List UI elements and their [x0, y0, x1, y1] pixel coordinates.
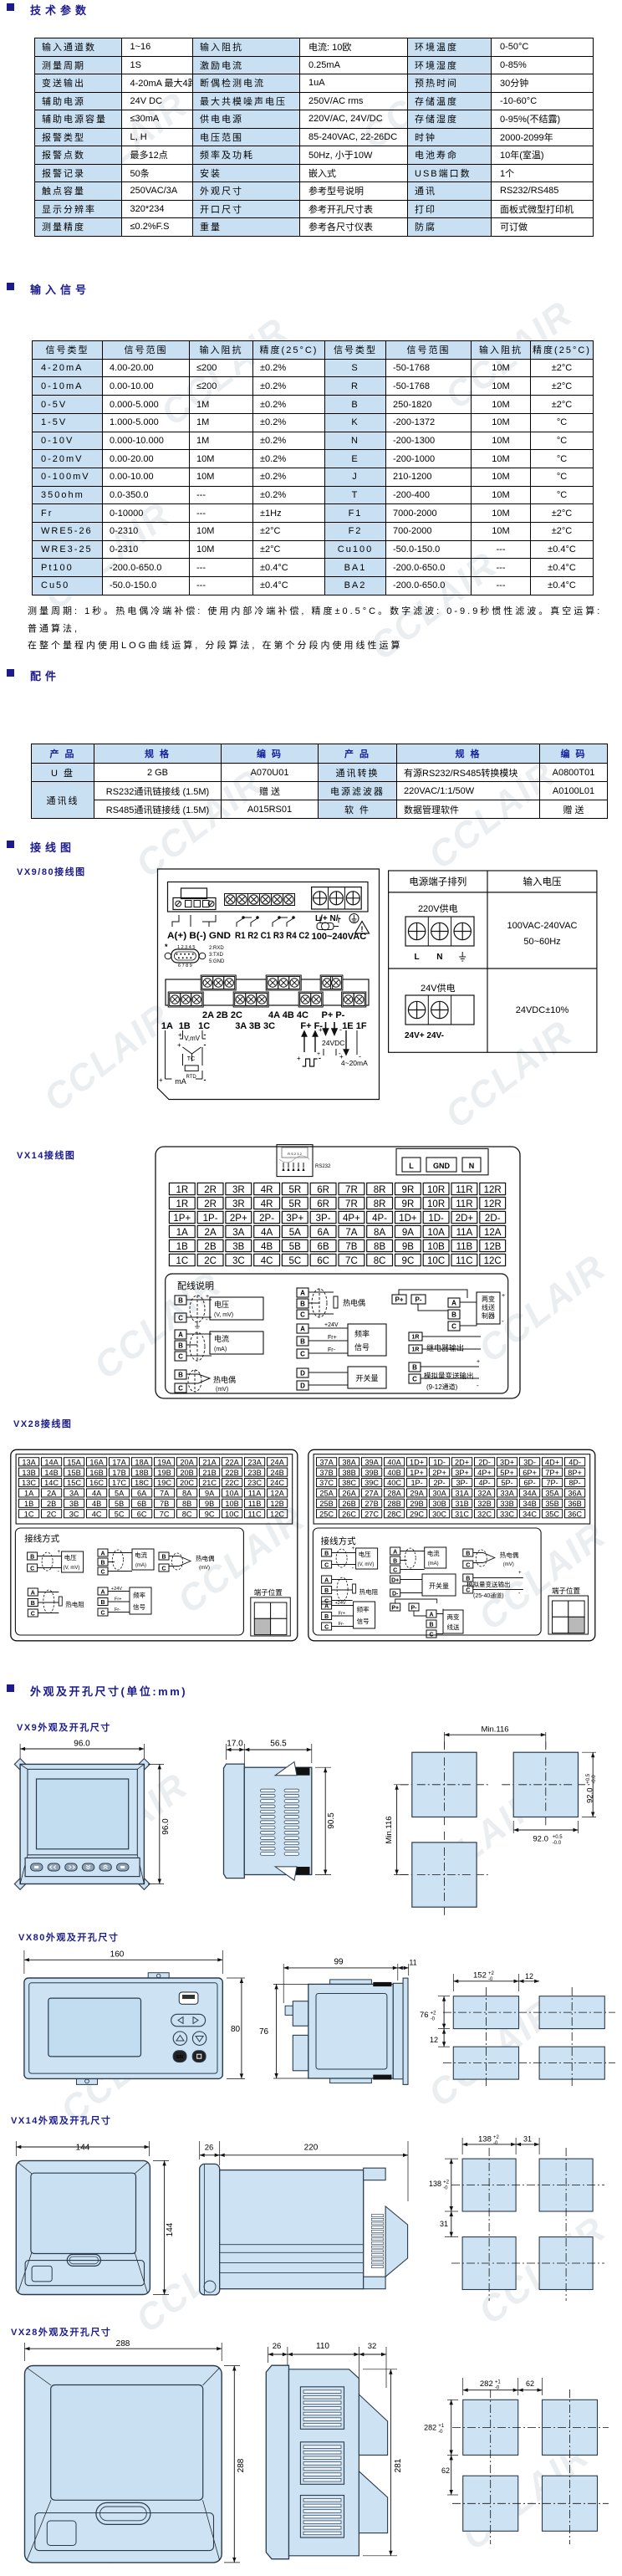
svg-text:+2: +2 — [488, 1971, 495, 1976]
svg-text:281: 281 — [394, 2458, 403, 2472]
svg-text:37C: 37C — [319, 1479, 334, 1487]
svg-text:+: + — [339, 1053, 344, 1061]
svg-text:RS232: RS232 — [315, 1164, 331, 1169]
svg-text:5A: 5A — [289, 1228, 301, 1238]
svg-text:282: 282 — [424, 2424, 436, 2432]
svg-text:23B: 23B — [247, 1469, 261, 1477]
svg-text:P-: P- — [416, 1296, 422, 1304]
svg-text:+2: +2 — [431, 2011, 437, 2016]
svg-text:1B: 1B — [179, 1021, 191, 1031]
svg-text:1D-: 1D- — [428, 1214, 444, 1224]
svg-text:C: C — [100, 1611, 105, 1617]
svg-text:4D-: 4D- — [568, 1458, 581, 1466]
svg-text:1B: 1B — [176, 1242, 188, 1252]
svg-text:-0: -0 — [431, 2017, 436, 2022]
svg-text:32: 32 — [368, 2342, 377, 2351]
svg-text:19B: 19B — [157, 1469, 171, 1477]
svg-text:36C: 36C — [568, 1510, 582, 1518]
svg-text:+1: +1 — [495, 2379, 502, 2384]
svg-text:A(+) B(-) GND: A(+) B(-) GND — [167, 931, 231, 941]
svg-text:5B: 5B — [289, 1242, 301, 1252]
svg-text:+24V: +24V — [335, 1601, 346, 1606]
svg-text:电流: 电流 — [214, 1334, 229, 1343]
svg-text:4~20mA: 4~20mA — [341, 1059, 368, 1067]
svg-text:15B: 15B — [67, 1469, 80, 1477]
svg-text:Min.116: Min.116 — [481, 1725, 508, 1735]
svg-text:9R: 9R — [402, 1199, 415, 1209]
svg-text:P+ P-: P+ P- — [322, 1010, 345, 1020]
svg-text:-0: -0 — [443, 2186, 448, 2191]
svg-text:32A: 32A — [477, 1490, 492, 1498]
svg-text:8R: 8R — [374, 1199, 386, 1209]
svg-text:11B: 11B — [456, 1242, 473, 1252]
svg-text:C: C — [30, 1567, 34, 1572]
svg-text:A: A — [300, 1290, 305, 1297]
svg-text:35A: 35A — [545, 1490, 559, 1498]
svg-text:+: + — [518, 1571, 522, 1576]
svg-text:2A 2B 2C: 2A 2B 2C — [202, 1010, 242, 1020]
svg-text:17.0: 17.0 — [227, 1740, 243, 1749]
svg-text:36B: 36B — [568, 1500, 581, 1508]
svg-text:两变: 两变 — [447, 1613, 460, 1621]
svg-text:22A: 22A — [225, 1458, 239, 1466]
svg-text:37B: 37B — [319, 1469, 333, 1477]
svg-text:9B: 9B — [402, 1242, 414, 1252]
svg-text:开关量: 开关量 — [429, 1582, 449, 1590]
svg-text:V,mV: V,mV — [184, 1035, 200, 1042]
svg-text:6A: 6A — [137, 1490, 147, 1498]
svg-text:B: B — [300, 1301, 305, 1308]
svg-text:3R: 3R — [232, 1199, 245, 1209]
svg-text:A: A — [100, 1590, 105, 1596]
svg-text:(9-12通道): (9-12通道) — [426, 1383, 458, 1391]
svg-text:Fr+: Fr+ — [115, 1597, 121, 1602]
svg-text:13A: 13A — [22, 1458, 36, 1466]
svg-text:D: D — [300, 1383, 305, 1390]
svg-text:*: * — [165, 943, 168, 951]
svg-text:4P+: 4P+ — [343, 1214, 360, 1224]
svg-text:152: 152 — [473, 1971, 487, 1981]
svg-text:C: C — [324, 1625, 329, 1631]
svg-text:92.0: 92.0 — [586, 1788, 595, 1804]
svg-text:+: + — [502, 1293, 505, 1299]
svg-text:1C: 1C — [176, 1256, 188, 1266]
svg-text:6 7 8 9: 6 7 8 9 — [178, 963, 192, 969]
svg-text:R S 2 3 2: R S 2 3 2 — [288, 1152, 302, 1156]
svg-text:1P+: 1P+ — [410, 1469, 424, 1477]
svg-text:26C: 26C — [342, 1510, 356, 1518]
svg-text:12C: 12C — [270, 1510, 284, 1518]
svg-text:频率: 频率 — [133, 1591, 145, 1599]
svg-text:输入电压: 输入电压 — [523, 876, 562, 887]
svg-text:3P-: 3P- — [316, 1214, 331, 1224]
svg-text:电流: 电流 — [427, 1549, 440, 1557]
svg-text:288: 288 — [116, 2339, 130, 2349]
svg-text:11R: 11R — [456, 1185, 472, 1195]
svg-text:92.0: 92.0 — [533, 1835, 548, 1844]
svg-text:Fr-: Fr- — [339, 1622, 344, 1627]
svg-text:100~240VAC: 100~240VAC — [312, 932, 367, 942]
svg-text:B: B — [178, 1372, 183, 1379]
svg-text:18B: 18B — [135, 1469, 148, 1477]
svg-text:3P-: 3P- — [456, 1479, 467, 1487]
svg-text:(V, mV): (V, mV) — [358, 1562, 375, 1567]
svg-text:A: A — [429, 1613, 433, 1618]
svg-text:2A: 2A — [47, 1490, 57, 1498]
svg-text:3:TXD: 3:TXD — [209, 953, 224, 958]
svg-text:L: L — [409, 1162, 414, 1170]
svg-text:+2: +2 — [443, 2180, 450, 2185]
svg-text:4B: 4B — [92, 1500, 101, 1508]
svg-text:7A: 7A — [160, 1490, 170, 1498]
svg-text:11C: 11C — [456, 1256, 472, 1266]
svg-text:26: 26 — [273, 2342, 282, 2351]
svg-text:B: B — [31, 1601, 35, 1607]
svg-text:信号: 信号 — [357, 1617, 370, 1625]
svg-text:2D-: 2D- — [485, 1214, 501, 1224]
svg-text:+0.5: +0.5 — [553, 1835, 563, 1840]
svg-text:6B: 6B — [318, 1242, 329, 1252]
svg-text:3C: 3C — [232, 1256, 245, 1266]
svg-text:3B: 3B — [69, 1500, 79, 1508]
svg-text:9A: 9A — [205, 1490, 215, 1498]
svg-text:10A: 10A — [427, 1228, 445, 1238]
svg-text:L/+ N/-: L/+ N/- — [315, 914, 341, 923]
svg-text:-: - — [204, 1030, 206, 1039]
svg-text:20A: 20A — [180, 1458, 194, 1466]
svg-text:A: A — [31, 1591, 35, 1597]
svg-text:11A: 11A — [456, 1228, 473, 1238]
svg-text:线送: 线送 — [447, 1623, 460, 1631]
svg-text:36A: 36A — [568, 1490, 582, 1498]
svg-text:B: B — [100, 1561, 105, 1567]
svg-text:1P-: 1P- — [203, 1214, 218, 1224]
svg-text:22B: 22B — [225, 1469, 238, 1477]
svg-text:24B: 24B — [270, 1469, 283, 1477]
svg-text:10A: 10A — [225, 1490, 239, 1498]
svg-text:-0: -0 — [493, 2141, 498, 2146]
svg-text:4R: 4R — [261, 1199, 273, 1209]
svg-text:+: + — [177, 1041, 181, 1049]
svg-text:模拟量变送输出: 模拟量变送输出 — [424, 1372, 474, 1380]
svg-text:4A: 4A — [92, 1490, 102, 1498]
svg-text:1D+: 1D+ — [410, 1458, 424, 1466]
svg-text:(V, mV): (V, mV) — [214, 1312, 233, 1318]
svg-text:+: + — [58, 1550, 61, 1555]
svg-text:5P+: 5P+ — [500, 1469, 514, 1477]
svg-text:3A 3B 3C: 3A 3B 3C — [235, 1021, 275, 1031]
svg-text:C: C — [466, 1563, 470, 1569]
svg-text:B: B — [324, 1551, 329, 1557]
svg-text:A: A — [324, 1604, 329, 1610]
svg-text:4A 4B 4C: 4A 4B 4C — [268, 1010, 308, 1020]
svg-text:26A: 26A — [342, 1490, 356, 1498]
svg-text:电压: 电压 — [64, 1553, 77, 1561]
svg-text:-0: -0 — [438, 2430, 443, 2435]
svg-text:(25-40通道): (25-40通道) — [473, 1592, 504, 1599]
svg-text:2B: 2B — [205, 1242, 217, 1252]
svg-text:27B: 27B — [365, 1500, 378, 1508]
svg-text:2C: 2C — [47, 1510, 57, 1518]
svg-text:5C: 5C — [288, 1256, 301, 1266]
svg-text:2P-: 2P- — [259, 1214, 274, 1224]
svg-text:17C: 17C — [112, 1479, 126, 1487]
svg-text:16B: 16B — [89, 1469, 103, 1477]
svg-text:32B: 32B — [477, 1500, 491, 1508]
svg-text:25A: 25A — [319, 1490, 334, 1498]
svg-text:2D+: 2D+ — [456, 1214, 474, 1224]
svg-text:17B: 17B — [112, 1469, 125, 1477]
svg-text:17A: 17A — [112, 1458, 126, 1466]
svg-text:12: 12 — [525, 1972, 533, 1981]
svg-text:3B: 3B — [232, 1242, 244, 1252]
svg-text:-: - — [206, 1316, 208, 1323]
svg-text:220V供电: 220V供电 — [418, 902, 458, 914]
svg-text:接线方式: 接线方式 — [24, 1533, 59, 1544]
svg-text:热电偶: 热电偶 — [213, 1375, 236, 1384]
svg-text:mA: mA — [175, 1077, 186, 1086]
svg-text:-: - — [339, 1025, 342, 1034]
svg-text:33C: 33C — [500, 1510, 514, 1518]
svg-text:35B: 35B — [545, 1500, 558, 1508]
svg-text:P-: P- — [411, 1606, 418, 1612]
svg-text:电压: 电压 — [214, 1300, 229, 1309]
svg-text:+: + — [206, 1294, 209, 1300]
svg-text:19C: 19C — [157, 1479, 171, 1487]
svg-text:+: + — [159, 1076, 163, 1084]
svg-text:1P+: 1P+ — [173, 1214, 191, 1224]
svg-text:16C: 16C — [89, 1479, 104, 1487]
svg-text:-: - — [204, 1076, 206, 1084]
svg-text:24VDC: 24VDC — [322, 1039, 344, 1047]
svg-text:-0: -0 — [495, 2385, 500, 2390]
svg-text:热电阻: 热电阻 — [359, 1587, 379, 1596]
svg-text:9A: 9A — [402, 1228, 414, 1238]
svg-text:26B: 26B — [342, 1500, 355, 1508]
svg-text:B: B — [30, 1555, 34, 1561]
svg-text:62: 62 — [441, 2466, 450, 2475]
svg-text:-: - — [477, 1382, 479, 1389]
svg-text:信号: 信号 — [133, 1602, 145, 1611]
svg-text:GND: GND — [433, 1162, 451, 1170]
svg-text:6P+: 6P+ — [523, 1469, 537, 1477]
svg-text:28A: 28A — [387, 1490, 401, 1498]
svg-text:99: 99 — [334, 1958, 344, 1967]
svg-text:D: D — [300, 1370, 305, 1377]
svg-text:3R: 3R — [232, 1185, 245, 1195]
svg-text:27C: 27C — [365, 1510, 379, 1518]
svg-text:24V+ 24V-: 24V+ 24V- — [405, 1031, 444, 1040]
svg-text:两变: 两变 — [482, 1295, 495, 1303]
svg-text:24V供电: 24V供电 — [421, 982, 456, 994]
svg-text:+: + — [477, 1359, 480, 1365]
svg-text:B: B — [412, 1364, 417, 1372]
svg-text:EN: EN — [176, 2055, 183, 2060]
svg-text:24A: 24A — [270, 1458, 284, 1466]
svg-text:8B: 8B — [182, 1500, 191, 1508]
svg-text:282: 282 — [480, 2379, 493, 2389]
svg-text:5:GND: 5:GND — [209, 959, 225, 964]
svg-text:40C: 40C — [387, 1479, 401, 1487]
svg-text:(V, mV): (V, mV) — [64, 1566, 80, 1571]
svg-text:7C: 7C — [160, 1510, 170, 1518]
svg-text:14B: 14B — [44, 1469, 58, 1477]
svg-text:56.5: 56.5 — [270, 1740, 287, 1749]
svg-text:2D-: 2D- — [478, 1458, 491, 1466]
svg-text:B: B — [451, 1311, 456, 1319]
svg-text:5R: 5R — [288, 1199, 301, 1209]
svg-text:B: B — [300, 1338, 305, 1346]
svg-text:138: 138 — [478, 2134, 492, 2144]
svg-text:16A: 16A — [89, 1458, 104, 1466]
svg-text:频率: 频率 — [357, 1605, 370, 1613]
svg-text:34A: 34A — [523, 1490, 537, 1498]
svg-text:3D-: 3D- — [523, 1458, 536, 1466]
svg-text:13C: 13C — [22, 1479, 36, 1487]
svg-text:Fr-: Fr- — [328, 1347, 336, 1353]
svg-text:+: + — [319, 1026, 323, 1034]
svg-text:33A: 33A — [500, 1490, 514, 1498]
svg-text:2B: 2B — [47, 1500, 56, 1508]
svg-text:29A: 29A — [410, 1490, 424, 1498]
svg-text:2R: 2R — [204, 1185, 217, 1195]
svg-text:30A: 30A — [432, 1490, 446, 1498]
svg-text:29B: 29B — [410, 1500, 423, 1508]
svg-text:10R: 10R — [427, 1199, 445, 1209]
svg-text:1R: 1R — [412, 1347, 420, 1353]
svg-text:7B: 7B — [345, 1242, 357, 1252]
svg-text:配线说明: 配线说明 — [177, 1280, 214, 1291]
svg-text:C: C — [324, 1563, 329, 1569]
svg-text:B: B — [324, 1588, 329, 1594]
svg-text:2P+: 2P+ — [432, 1469, 446, 1477]
svg-text:10B: 10B — [225, 1500, 238, 1508]
svg-text:电源端子排列: 电源端子排列 — [409, 876, 466, 887]
svg-text:39B: 39B — [365, 1469, 378, 1477]
svg-text:+0.5: +0.5 — [586, 1773, 591, 1784]
svg-text:C: C — [31, 1612, 35, 1618]
svg-text:L: L — [415, 953, 420, 962]
svg-text:38B: 38B — [342, 1469, 355, 1477]
svg-text:A: A — [178, 1331, 183, 1339]
svg-text:开关量: 开关量 — [355, 1373, 378, 1383]
svg-text:C: C — [466, 1588, 470, 1594]
svg-text:C: C — [178, 1315, 183, 1322]
svg-text:-0: -0 — [488, 1977, 493, 1982]
svg-text:Fr+: Fr+ — [339, 1612, 345, 1617]
svg-text:11B: 11B — [248, 1500, 262, 1508]
svg-text:3P+: 3P+ — [455, 1469, 469, 1477]
svg-text:TC: TC — [187, 1056, 195, 1062]
svg-text:10C: 10C — [427, 1256, 445, 1266]
svg-text:B: B — [393, 1559, 397, 1565]
svg-text:4P-: 4P- — [372, 1214, 387, 1224]
svg-text:-0.0: -0.0 — [592, 1775, 597, 1784]
svg-text:3A: 3A — [69, 1490, 79, 1498]
svg-text:8A: 8A — [374, 1228, 385, 1238]
svg-text:23A: 23A — [247, 1458, 262, 1466]
svg-text:8B: 8B — [374, 1242, 385, 1252]
svg-text:RTD: RTD — [186, 1075, 197, 1080]
svg-text:12: 12 — [430, 2036, 438, 2044]
svg-text:10B: 10B — [427, 1242, 445, 1252]
svg-text:144: 144 — [166, 2222, 175, 2236]
svg-text:4R: 4R — [261, 1185, 273, 1195]
svg-text:1P-: 1P- — [410, 1479, 422, 1487]
svg-text:20C: 20C — [180, 1479, 194, 1487]
svg-text:D+: D+ — [391, 1578, 399, 1584]
svg-text:(mA): (mA) — [428, 1561, 439, 1567]
svg-text:80: 80 — [231, 2025, 241, 2034]
svg-text:5R: 5R — [288, 1185, 301, 1195]
svg-text:1A: 1A — [24, 1490, 34, 1498]
svg-text:(mA): (mA) — [214, 1347, 227, 1352]
svg-text:4P-: 4P- — [478, 1479, 490, 1487]
svg-text:12C: 12C — [484, 1256, 502, 1266]
svg-text:8A: 8A — [182, 1490, 192, 1498]
svg-text:11A: 11A — [248, 1490, 263, 1498]
svg-text:14A: 14A — [44, 1458, 59, 1466]
svg-text:P+: P+ — [395, 1296, 403, 1304]
svg-text:2R: 2R — [204, 1199, 217, 1209]
svg-text:19A: 19A — [157, 1458, 171, 1466]
svg-text:39A: 39A — [365, 1458, 379, 1466]
svg-text:10R: 10R — [427, 1185, 445, 1195]
svg-text:26: 26 — [205, 2144, 214, 2153]
svg-text:C: C — [412, 1376, 417, 1383]
svg-text:B: B — [324, 1614, 329, 1620]
svg-text:D-: D- — [392, 1592, 399, 1597]
svg-text:24VDC±10%: 24VDC±10% — [516, 1005, 569, 1015]
svg-text:B: B — [178, 1342, 183, 1350]
svg-text:6R: 6R — [317, 1185, 329, 1195]
svg-text:25C: 25C — [319, 1510, 334, 1518]
svg-text:9R: 9R — [402, 1185, 415, 1195]
svg-text:4C: 4C — [92, 1510, 102, 1518]
svg-text:电压: 电压 — [359, 1550, 371, 1558]
svg-text:C: C — [300, 1351, 305, 1358]
svg-text:C: C — [178, 1385, 183, 1393]
svg-text:7B: 7B — [160, 1500, 169, 1508]
svg-text:1A: 1A — [161, 1021, 173, 1031]
svg-text:信号: 信号 — [354, 1342, 370, 1352]
svg-text:B: B — [466, 1551, 470, 1557]
svg-text:+24V: +24V — [324, 1322, 339, 1328]
svg-text:29C: 29C — [410, 1510, 424, 1518]
svg-text:31B: 31B — [455, 1500, 468, 1508]
svg-text:热电偶: 热电偶 — [196, 1554, 215, 1562]
svg-text:5C: 5C — [115, 1510, 125, 1518]
svg-text:7C: 7C — [345, 1256, 358, 1266]
svg-text:1R: 1R — [176, 1199, 188, 1209]
svg-text:31C: 31C — [455, 1510, 469, 1518]
svg-text:12R: 12R — [484, 1185, 502, 1195]
svg-text:21B: 21B — [202, 1469, 216, 1477]
svg-text:A: A — [100, 1551, 105, 1557]
svg-text:50~60Hz: 50~60Hz — [523, 937, 560, 947]
svg-text:20B: 20B — [180, 1469, 193, 1477]
svg-text:8R: 8R — [374, 1185, 386, 1195]
svg-text:N: N — [469, 1162, 475, 1170]
svg-text:1D-: 1D- — [433, 1458, 446, 1466]
svg-text:7P-: 7P- — [546, 1479, 558, 1487]
svg-text:5A: 5A — [115, 1490, 125, 1498]
svg-text:4D+: 4D+ — [545, 1458, 559, 1466]
svg-text:9C: 9C — [205, 1510, 215, 1518]
svg-text:6R: 6R — [317, 1199, 329, 1209]
svg-text:8P+: 8P+ — [568, 1469, 582, 1477]
svg-text:7R: 7R — [345, 1199, 358, 1209]
